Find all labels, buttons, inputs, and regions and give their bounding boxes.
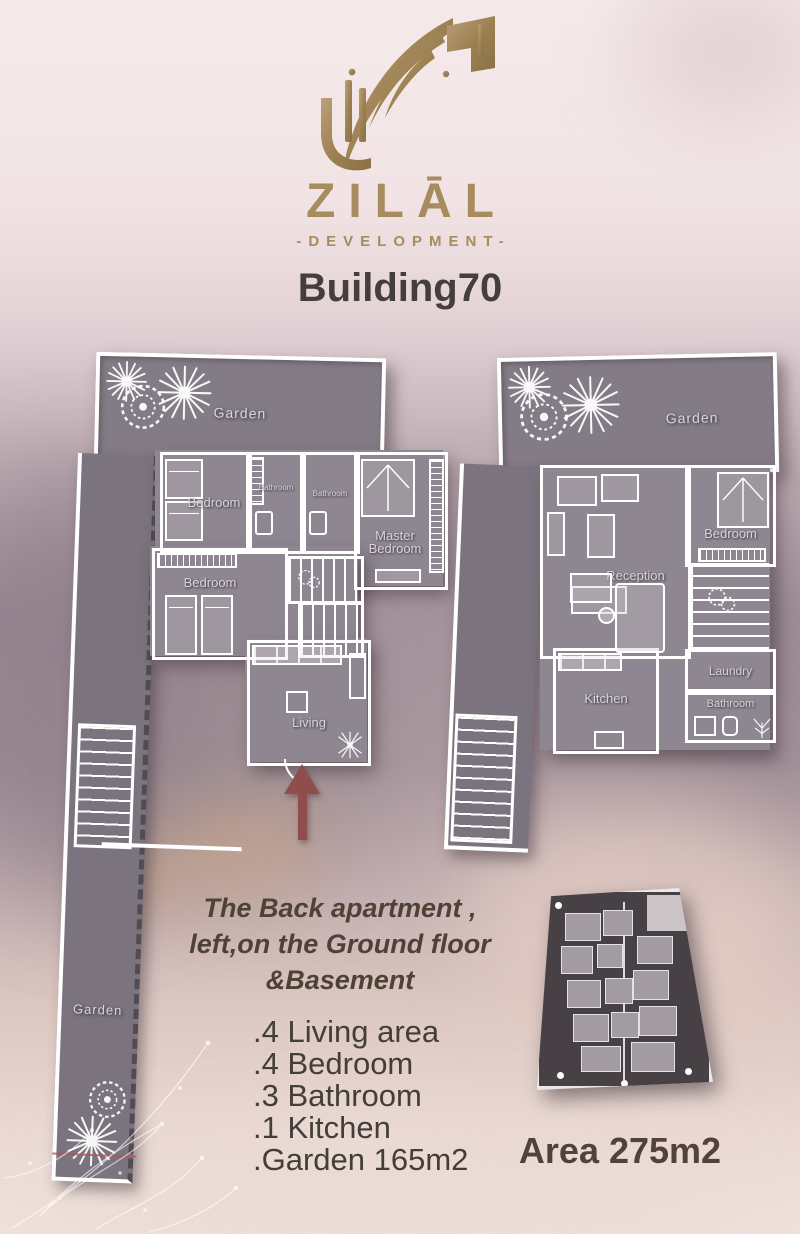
room-label: Bedroom <box>171 495 257 510</box>
room-bedroom-top: Bedroom <box>160 452 252 554</box>
sideboard <box>570 573 612 603</box>
brand-name: ZILĀL <box>250 174 550 229</box>
plant-icon <box>749 714 775 740</box>
room-bathroom: Bathroom <box>685 689 776 743</box>
toilet-icon <box>309 511 327 535</box>
tree-icon <box>559 373 622 436</box>
room-label: Bedroom <box>145 575 275 590</box>
stairs-icon <box>74 723 137 849</box>
area-label: Area 275m2 <box>495 1130 745 1172</box>
room-master-bedroom: Master Bedroom <box>354 452 448 590</box>
room-label: Bathroom <box>303 489 357 498</box>
feature-item: .1 Kitchen <box>253 1112 468 1144</box>
feature-item: .3 Bathroom <box>253 1080 468 1112</box>
room-bedroom: Bedroom <box>685 465 776 567</box>
sink-icon <box>694 716 716 736</box>
room-label: Bedroom <box>688 526 773 541</box>
mini-plan-light-area <box>647 895 699 931</box>
toilet-icon <box>722 716 738 736</box>
plant-icon <box>292 562 326 596</box>
room-bathroom-1: Bathroom <box>246 452 306 554</box>
poster: ZILĀL -DEVELOPMENT- Building70 Garden Ga… <box>0 0 800 1234</box>
table-icon <box>286 691 308 713</box>
room-label: Bathroom <box>688 698 773 710</box>
stairs-icon <box>450 714 517 844</box>
room-living: Living <box>247 640 371 766</box>
wall <box>102 842 242 851</box>
brand-logo: ZILĀL -DEVELOPMENT- <box>250 12 550 250</box>
flower-ornament-icon <box>0 988 250 1234</box>
plant-icon <box>334 729 366 761</box>
brand-tagline: -DEVELOPMENT- <box>250 233 550 250</box>
ground-garden-area: Garden <box>497 352 779 478</box>
cabinet-icon <box>349 653 366 699</box>
stool-icon <box>598 607 615 624</box>
mini-site-plan <box>535 888 713 1090</box>
feature-item: .4 Bedroom <box>253 1048 468 1080</box>
room-label: Bathroom <box>249 483 303 492</box>
room-label: Laundry <box>688 664 773 678</box>
toilet-icon <box>255 511 273 535</box>
zilal-calligraphy-icon <box>295 12 505 180</box>
page-title: Building70 <box>200 266 600 311</box>
ground-access-strip <box>444 463 544 852</box>
description-line: left,on the Ground floor <box>175 926 505 962</box>
description-text: The Back apartment , left,on the Ground … <box>175 890 505 998</box>
room-label: Living <box>250 715 368 730</box>
entrance-arrow-icon <box>284 764 320 840</box>
ground-floor-plan: Garden Reception Bedroom Laundry <box>450 345 785 865</box>
description-line: The Back apartment , <box>175 890 505 926</box>
background-blur-blob <box>630 0 800 130</box>
garden-label: Garden <box>622 408 762 427</box>
room-label: Master Bedroom <box>351 529 439 555</box>
room-label: Kitchen <box>556 691 656 706</box>
plant-icon <box>702 581 742 621</box>
feature-item: .Garden 165m2 <box>253 1144 468 1176</box>
features-list: .4 Living area .4 Bedroom .3 Bathroom .1… <box>253 1016 468 1176</box>
room-kitchen: Kitchen <box>553 648 659 754</box>
feature-item: .4 Living area <box>253 1016 468 1048</box>
stove-icon <box>594 731 624 749</box>
dining-table <box>615 583 665 653</box>
